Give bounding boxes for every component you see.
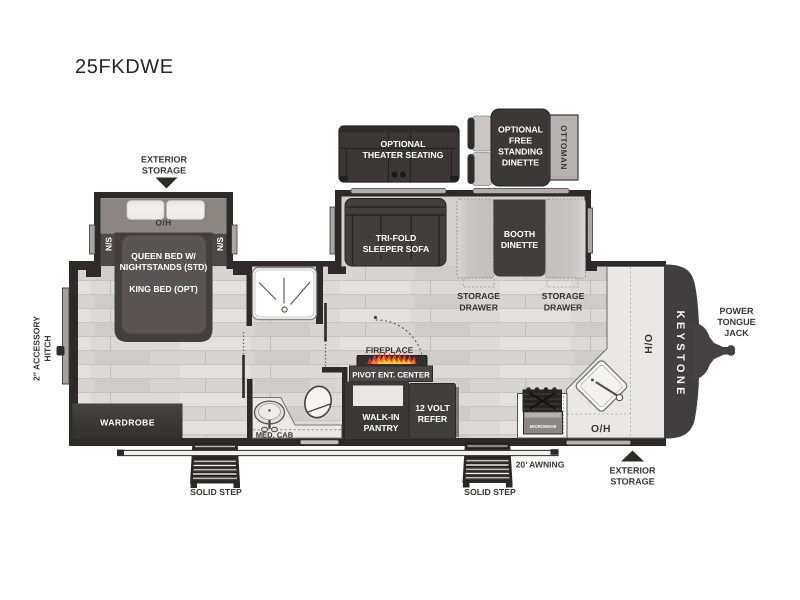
svg-text:OPTIONAL: OPTIONAL bbox=[381, 139, 427, 149]
svg-text:OPTIONAL: OPTIONAL bbox=[498, 125, 544, 135]
svg-text:MED. CAB: MED. CAB bbox=[256, 431, 294, 440]
svg-text:N/S: N/S bbox=[104, 237, 114, 251]
svg-text:SOLID STEP: SOLID STEP bbox=[464, 487, 516, 497]
svg-text:HITCH: HITCH bbox=[43, 335, 53, 361]
svg-text:O/H: O/H bbox=[591, 424, 611, 435]
svg-text:PANTRY: PANTRY bbox=[364, 423, 399, 433]
svg-text:EXTERIOR: EXTERIOR bbox=[609, 466, 656, 476]
svg-text:THEATER SEATING: THEATER SEATING bbox=[363, 150, 444, 160]
svg-text:SLEEPER SOFA: SLEEPER SOFA bbox=[363, 244, 430, 254]
svg-text:25FKDWE: 25FKDWE bbox=[75, 56, 174, 78]
svg-text:N/S: N/S bbox=[215, 237, 225, 251]
svg-text:STORAGE: STORAGE bbox=[457, 291, 500, 301]
svg-text:MICROWAVE: MICROWAVE bbox=[530, 424, 557, 429]
svg-text:FIREPLACE: FIREPLACE bbox=[366, 345, 414, 355]
svg-text:DRAWER: DRAWER bbox=[459, 303, 498, 313]
svg-text:O/H: O/H bbox=[155, 218, 171, 228]
svg-text:20’ AWNING: 20’ AWNING bbox=[516, 460, 565, 470]
svg-text:DRAWER: DRAWER bbox=[544, 303, 583, 313]
svg-text:SOLID STEP: SOLID STEP bbox=[190, 487, 242, 497]
svg-text:STANDING: STANDING bbox=[498, 147, 543, 157]
svg-text:EXTERIOR: EXTERIOR bbox=[141, 155, 188, 165]
svg-text:H/O: H/O bbox=[644, 333, 655, 353]
svg-text:STORAGE: STORAGE bbox=[610, 477, 654, 487]
svg-text:FREE: FREE bbox=[509, 136, 532, 146]
svg-text:POWER: POWER bbox=[719, 306, 754, 316]
svg-text:TONGUE: TONGUE bbox=[717, 317, 755, 327]
svg-text:NIGHTSTANDS (STD): NIGHTSTANDS (STD) bbox=[120, 262, 208, 272]
svg-text:JACK: JACK bbox=[724, 328, 749, 338]
svg-text:TRI-FOLD: TRI-FOLD bbox=[376, 233, 417, 243]
svg-text:DINETTE: DINETTE bbox=[502, 158, 539, 168]
svg-text:QUEEN BED W/: QUEEN BED W/ bbox=[131, 251, 196, 261]
svg-text:REFER: REFER bbox=[418, 414, 448, 424]
svg-text:STORAGE: STORAGE bbox=[142, 166, 186, 176]
svg-text:12 VOLT: 12 VOLT bbox=[415, 403, 450, 413]
svg-text:PIVOT ENT. CENTER: PIVOT ENT. CENTER bbox=[352, 370, 430, 379]
svg-text:STORAGE: STORAGE bbox=[542, 291, 585, 301]
svg-text:KING BED (OPT): KING BED (OPT) bbox=[129, 284, 198, 294]
svg-text:BOOTH: BOOTH bbox=[504, 229, 535, 239]
svg-text:WALK-IN: WALK-IN bbox=[362, 412, 399, 422]
svg-text:2″ ACCESSORY: 2″ ACCESSORY bbox=[32, 316, 42, 381]
svg-text:OTTOMAN: OTTOMAN bbox=[559, 125, 568, 170]
svg-text:WARDROBE: WARDROBE bbox=[100, 418, 155, 428]
svg-text:DINETTE: DINETTE bbox=[501, 240, 538, 250]
